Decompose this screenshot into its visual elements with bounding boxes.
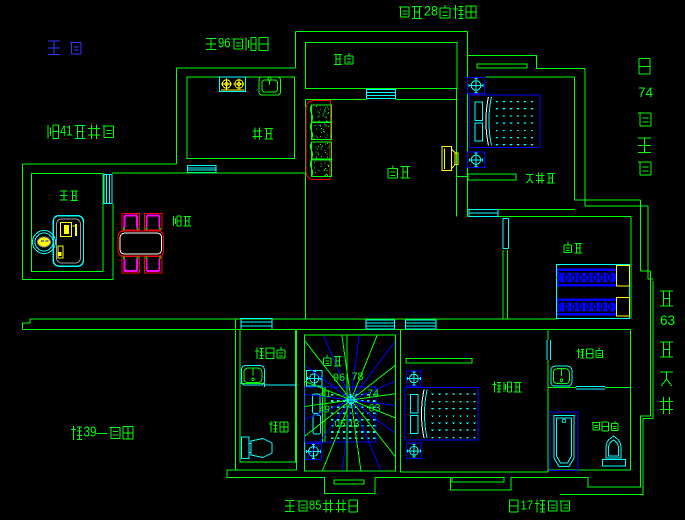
svg-text:96: 96 [218, 36, 231, 51]
svg-text:74: 74 [367, 388, 379, 400]
svg-text:39: 39 [84, 425, 97, 441]
svg-text:74: 74 [638, 85, 654, 100]
svg-text:96: 96 [333, 372, 345, 384]
svg-text:05: 05 [335, 419, 346, 430]
svg-text:78: 78 [352, 371, 364, 383]
svg-text:49: 49 [319, 404, 330, 415]
svg-text:28: 28 [424, 4, 438, 19]
svg-text:63: 63 [369, 403, 381, 415]
svg-text:41: 41 [60, 124, 72, 140]
svg-text:63: 63 [660, 313, 675, 328]
svg-text:17: 17 [521, 498, 533, 513]
svg-text:13: 13 [349, 419, 360, 430]
svg-text:85: 85 [309, 498, 321, 513]
svg-text:41: 41 [320, 389, 331, 400]
